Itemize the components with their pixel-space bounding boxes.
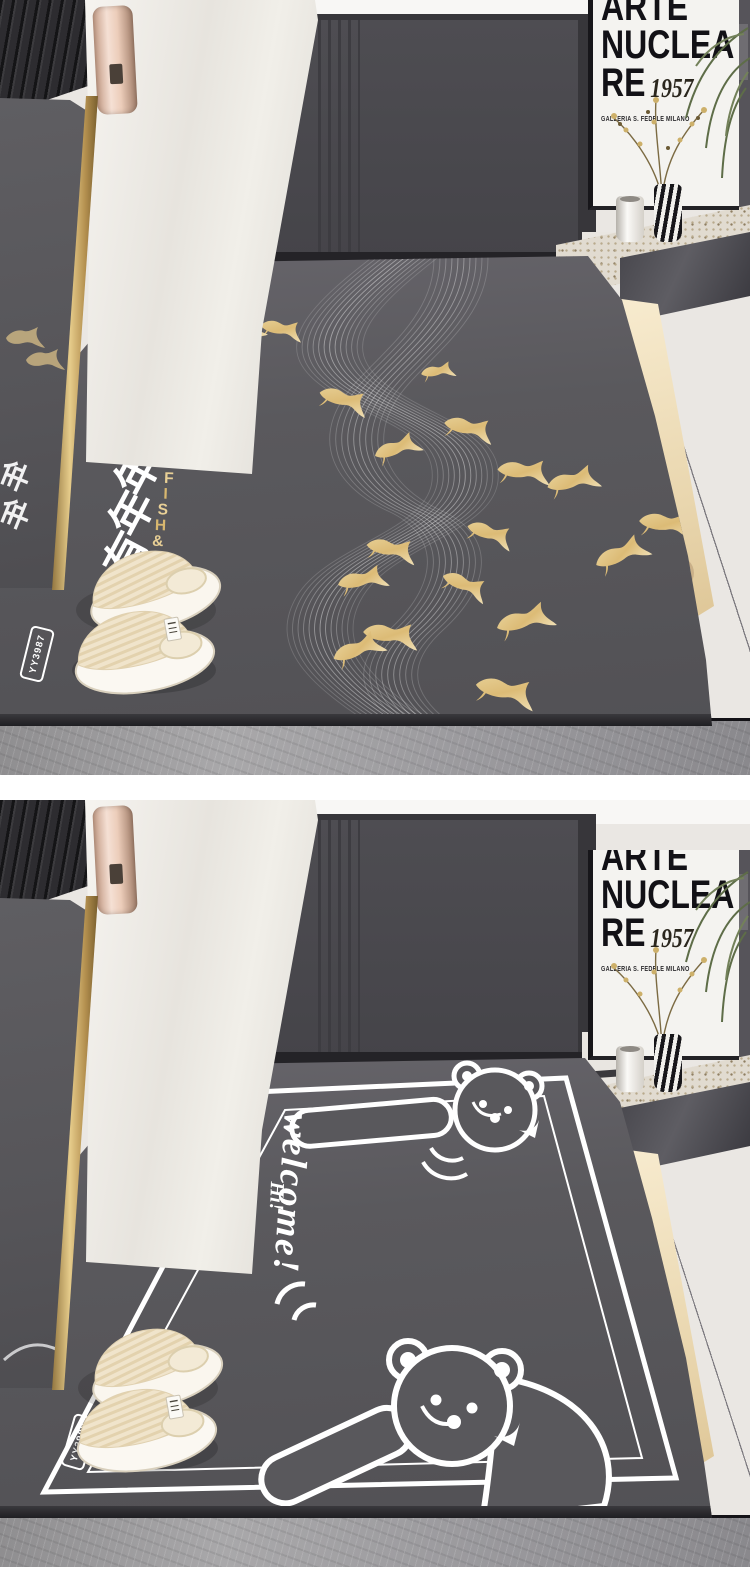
product-page: ARTE NUCLEA RE 1957 GALLERIA S. FEDELE M… [0,0,750,1583]
hi-text: Hi! [264,1181,288,1211]
mat-edge [0,1506,750,1518]
mat-edge [0,714,750,726]
door-grooves [318,20,360,258]
white-vase [616,1046,644,1092]
striped-vase [654,184,682,242]
tile-floor [0,718,750,775]
bottom-margin [0,1567,750,1583]
mirror-reflected-text: 年 年 [2,458,32,533]
plant-fronds [656,862,750,1042]
product-photo-koi-mat[interactable]: ARTE NUCLEA RE 1957 GALLERIA S. FEDELE M… [0,0,750,775]
plant-fronds [656,18,750,198]
bear-top [290,1063,542,1178]
image-gap [0,775,750,800]
wave-line-pattern [287,256,498,726]
door-handle [92,805,138,915]
mirror-reflected-fish [6,327,65,370]
door-handle [92,5,138,115]
slippers [46,548,246,708]
door-grooves [318,820,360,1058]
striped-vase [654,1034,682,1092]
white-vase [616,196,644,242]
tile-floor [0,1515,750,1567]
slippers [48,1326,248,1486]
product-photo-bear-mat[interactable]: ARTE NUCLEA RE 1957 GALLERIA S. FEDELE M… [0,800,750,1567]
mirror-reflected-line [4,1345,58,1360]
